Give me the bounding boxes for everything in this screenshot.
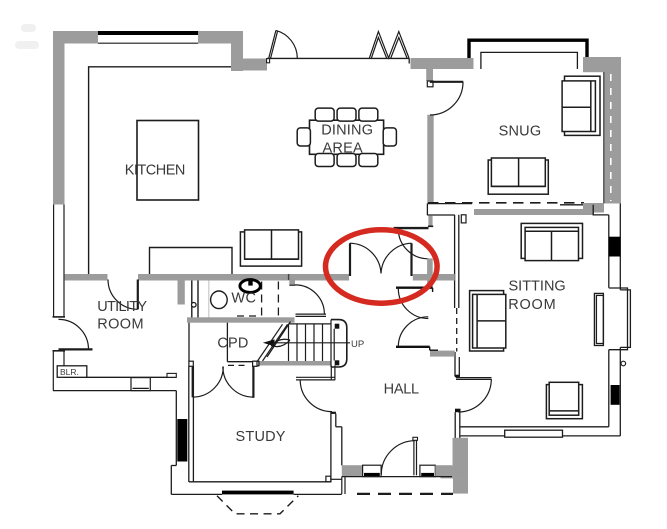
svg-text:SITTING: SITTING bbox=[509, 279, 566, 295]
svg-text:STUDY: STUDY bbox=[236, 429, 286, 445]
svg-text:WC: WC bbox=[231, 291, 256, 307]
svg-text:UP: UP bbox=[351, 339, 364, 350]
svg-text:AREA: AREA bbox=[323, 140, 363, 156]
svg-text:BLR.: BLR. bbox=[60, 367, 79, 377]
svg-text:KITCHEN: KITCHEN bbox=[125, 163, 185, 179]
svg-text:SNUG: SNUG bbox=[499, 123, 542, 139]
svg-text:ROOM: ROOM bbox=[97, 317, 144, 333]
svg-text:CPD: CPD bbox=[217, 336, 248, 352]
svg-text:DINING: DINING bbox=[321, 122, 373, 138]
svg-text:ROOM: ROOM bbox=[508, 297, 556, 313]
svg-text:UTILITY: UTILITY bbox=[97, 299, 147, 315]
svg-text:HALL: HALL bbox=[384, 382, 419, 398]
